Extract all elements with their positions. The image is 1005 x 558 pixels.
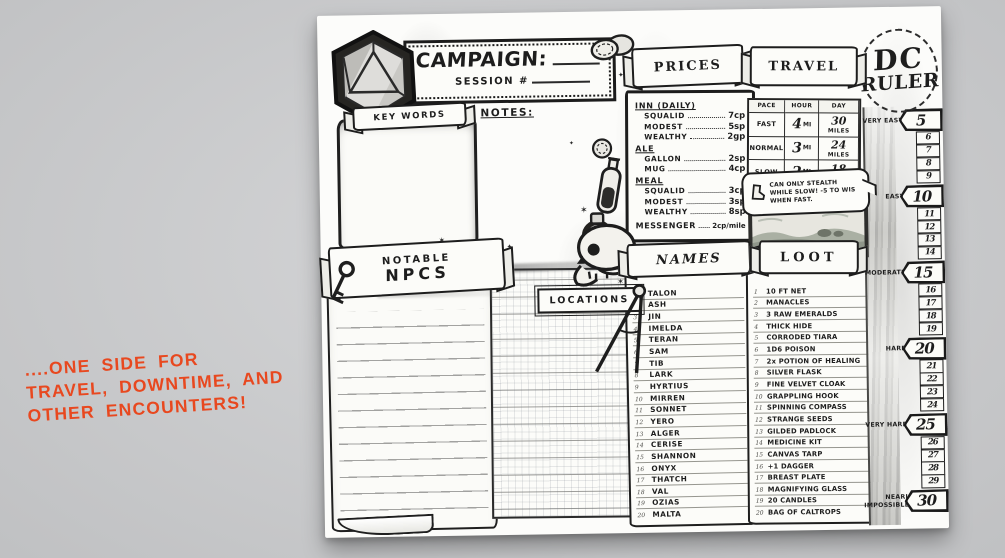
row-text: GILDED PADLOCK (764, 427, 836, 436)
row-text: SPINNING COMPASS (764, 403, 847, 412)
sparkle-doodle: ✦ (569, 140, 574, 147)
prices-title: PRICES (653, 57, 722, 75)
dc-minor-step: 16 (918, 283, 942, 296)
travel-day-unit: MILES (828, 152, 850, 158)
travel-hour-value: 4 (792, 117, 802, 133)
travel-day-value: 24 (831, 138, 846, 151)
price-value: 2gp (727, 131, 745, 141)
travel-col-header: PACE (749, 100, 785, 113)
dc-arrow-tag: 30 (904, 489, 948, 513)
row-number: 16 (756, 463, 765, 470)
loot-rows: 110 FT NET2MANACLES33 RAW EMERALDS4THICK… (753, 285, 871, 518)
travel-pace-cell: NORMAL (749, 137, 785, 161)
price-value: 7cp (728, 110, 745, 120)
price-row: MODEST5sp (635, 120, 745, 131)
name-row: 20MALTA (636, 507, 748, 520)
row-text: BREAST PLATE (765, 473, 826, 482)
dc-minor-step: 14 (918, 246, 942, 259)
row-number: 8 (755, 370, 764, 377)
potion-bottle-icon (591, 156, 628, 218)
price-row: WEALTHY8sp (636, 206, 746, 217)
row-number: 4 (754, 323, 763, 330)
dc-minor-step: 13 (917, 233, 941, 246)
dc-value: 30 (917, 492, 936, 510)
dotted-leader (669, 170, 726, 171)
dc-arrow-inner: 15 (903, 263, 942, 282)
dc-value: 12 (924, 222, 934, 232)
row-text: MIRREN (644, 393, 685, 403)
dc-arrow-tag: 15 (901, 260, 945, 284)
row-number: 18 (637, 489, 646, 496)
dc-arrow-inner: 5 (901, 111, 940, 130)
loot-row: 1920 CANDLES (755, 495, 871, 508)
row-number: 2 (754, 300, 763, 307)
dc-minor-step: 19 (919, 322, 943, 335)
price-label: GALLON (644, 154, 681, 163)
row-text: MALTA (646, 509, 681, 519)
loot-row: 11SPINNING COMPASS (754, 401, 870, 414)
loot-row: 110 FT NET (753, 285, 869, 298)
row-text: ALGER (645, 428, 681, 438)
loot-row: 12STRANGE SEEDS (754, 413, 870, 426)
npc-ruled-lines (336, 309, 489, 516)
notes-label: NOTES: (480, 107, 534, 120)
travel-hour-cell: 4MI (785, 113, 820, 137)
loot-row: 33 RAW EMERALDS (753, 308, 869, 321)
dc-minor-step: 7 (916, 144, 940, 157)
dc-arrow-inner: 25 (906, 415, 945, 434)
dc-value: 8 (926, 159, 931, 169)
dotted-leader (684, 160, 725, 161)
dc-arrow-tag: 25 (903, 413, 947, 437)
dc-value: 7 (926, 146, 931, 156)
dotted-leader (686, 202, 725, 203)
row-number: 11 (755, 405, 764, 412)
loot-row: 15CANVAS TARP (754, 448, 870, 461)
price-row: MODEST3sp (635, 195, 745, 206)
row-text: CORRODED TIARA (763, 333, 837, 342)
price-label: MODEST (645, 197, 684, 206)
row-text: MANACLES (763, 299, 810, 307)
dc-value: 29 (928, 476, 938, 486)
row-text: MAGNIFYING GLASS (765, 485, 847, 494)
dc-value: 17 (926, 298, 936, 308)
dc-arrow-inner: 20 (905, 339, 944, 358)
price-label: MODEST (644, 122, 683, 131)
row-text: 10 FT NET (763, 287, 806, 295)
row-number: 9 (755, 382, 764, 389)
dc-value: 23 (927, 387, 937, 397)
key-words-box (337, 117, 479, 251)
dc-value: 6 (925, 133, 930, 143)
drafting-compass-icon (589, 283, 654, 376)
loot-row: 10GRAPPLING HOOK (754, 390, 870, 403)
travel-hour-cell: 3MI (785, 137, 820, 161)
row-number: 15 (636, 454, 645, 461)
dc-minor-step: 17 (918, 296, 942, 309)
travel-col-header: HOUR (785, 100, 819, 113)
travel-day-unit: MILES (828, 129, 850, 135)
stealth-note-text: CAN ONLY STEALTH WHILE SLOW! -5 TO WIS W… (769, 178, 862, 205)
loot-row: 72x POTION OF HEALING (754, 355, 870, 368)
dotted-leader (699, 227, 709, 228)
row-text: SONNET (644, 404, 687, 414)
prices-panel: INN (DAILY)SQUALID7cpMODEST5spWEALTHY2gp… (625, 90, 756, 243)
price-value: 4cp (729, 163, 746, 173)
row-text: HYRTIUS (644, 381, 689, 391)
row-number: 16 (636, 466, 645, 473)
travel-col-header: DAY (820, 100, 860, 113)
price-label: MUG (644, 165, 665, 174)
dotted-leader (691, 213, 726, 214)
row-text: THATCH (646, 474, 688, 484)
dc-arrow-tag: 20 (902, 337, 946, 361)
dc-minor-step: 9 (916, 170, 940, 183)
dc-minor-step: 24 (920, 398, 944, 411)
stealth-note: CAN ONLY STEALTH WHILE SLOW! -5 TO WIS W… (741, 168, 871, 217)
loot-row: 16+1 DAGGER (754, 460, 870, 473)
row-number: 17 (637, 477, 646, 484)
row-number: 14 (755, 440, 764, 447)
loot-banner: LOOT (759, 240, 859, 274)
row-number: 9 (635, 384, 644, 391)
loot-row: 9FINE VELVET CLOAK (754, 378, 870, 391)
row-text: YERO (644, 416, 674, 426)
session-fill-line (532, 73, 590, 84)
travel-day-cell: 24MILES (819, 137, 859, 161)
dc-minor-step: 29 (921, 475, 945, 488)
dc-minor-step: 12 (917, 220, 941, 233)
dc-value: 10 (912, 187, 931, 205)
dc-value: 15 (913, 263, 932, 281)
dc-value: 26 (928, 437, 938, 447)
row-number: 11 (635, 407, 644, 414)
loot-row: 13GILDED PADLOCK (754, 425, 870, 438)
row-number: 12 (755, 416, 764, 423)
row-number: 13 (636, 431, 645, 438)
key-words-title: KEY WORDS (373, 110, 446, 124)
dc-major-step: EASY10 (900, 184, 944, 208)
price-row: SQUALID3cp (635, 185, 745, 196)
dc-value: 13 (925, 235, 935, 245)
dc-minor-step: 21 (919, 360, 943, 373)
travel-day-value: 30 (831, 115, 846, 128)
dotted-leader (688, 192, 725, 193)
row-number: 6 (755, 347, 764, 354)
dc-value: 19 (926, 324, 936, 334)
dotted-leader (686, 127, 725, 128)
npc-list-panel (326, 261, 498, 533)
campaign-label: CAMPAIGN: (415, 46, 548, 72)
dc-minor-step: 11 (917, 207, 941, 220)
loot-row: 17BREAST PLATE (755, 471, 871, 484)
dc-major-step: HARD20 (902, 337, 946, 361)
row-text: +1 DAGGER (765, 462, 815, 470)
row-number: 10 (755, 393, 764, 400)
loot-row: 4THICK HIDE (753, 320, 869, 333)
row-number: 15 (755, 451, 764, 458)
loot-row: 61D6 POISON (753, 343, 869, 356)
row-text: CANVAS TARP (764, 450, 822, 459)
dc-value: 20 (915, 339, 934, 357)
loot-row: 18MAGNIFYING GLASS (755, 483, 871, 496)
row-number: 19 (637, 501, 646, 508)
dc-value: 27 (928, 450, 938, 460)
dc-arrow-inner: 10 (902, 187, 941, 206)
dc-value: 24 (927, 400, 937, 410)
travel-banner: TRAVEL (750, 46, 858, 86)
dc-value: 18 (926, 311, 936, 321)
row-text: MEDICINE KIT (764, 438, 822, 447)
row-text: SILVER FLASK (764, 368, 822, 377)
travel-hour-unit: MI (803, 121, 811, 128)
dc-arrow-tag: 10 (900, 184, 944, 208)
row-number: 14 (636, 442, 645, 449)
row-text: 2x POTION OF HEALING (764, 356, 861, 365)
prices-banner: PRICES (631, 44, 745, 89)
row-number: 18 (756, 486, 765, 493)
price-label: WEALTHY (644, 132, 687, 141)
row-text: STRANGE SEEDS (764, 415, 833, 424)
dotted-leader (688, 117, 725, 118)
price-footer-value: 2cp/mile (712, 222, 745, 230)
row-text: 1D6 POISON (763, 345, 815, 353)
dc-value: 25 (916, 416, 935, 434)
dc-value: 21 (927, 361, 937, 371)
dc-value: 9 (926, 172, 931, 182)
row-text: 20 CANDLES (765, 497, 817, 505)
row-number: 10 (635, 396, 644, 403)
row-text: ONYX (645, 463, 676, 473)
price-value: 2sp (728, 153, 745, 163)
dc-minor-step: 18 (919, 309, 943, 322)
loot-row: 5CORRODED TIARA (753, 331, 869, 344)
dc-minor-step: 6 (916, 131, 940, 144)
row-text: 3 RAW EMERALDS (763, 310, 837, 319)
row-number: 7 (755, 358, 764, 365)
names-banner: NAMES (626, 240, 751, 278)
row-text: SHANNON (645, 451, 696, 461)
dc-value: 22 (927, 374, 937, 384)
price-row: WEALTHY2gp (635, 131, 745, 142)
price-label: SQUALID (644, 111, 685, 120)
dc-major-step: NEARLY IMPOSSIBLE30 (904, 489, 948, 513)
dc-value: 14 (925, 248, 935, 258)
row-number: 5 (754, 335, 763, 342)
boot-icon (749, 183, 766, 206)
dc-value: 16 (925, 285, 935, 295)
dc-minor-step: 23 (920, 385, 944, 398)
session-label: SESSION # (455, 76, 529, 88)
names-title: NAMES (656, 251, 722, 268)
row-text: OZIAS (646, 498, 680, 508)
price-row: GALLON2sp (635, 153, 745, 164)
price-footer-label: MESSENGER (636, 221, 696, 230)
dc-steps: VERY EASY56789EASY1011121314MODERATE1516… (898, 108, 948, 513)
row-number: 20 (637, 512, 646, 519)
dc-value: 5 (916, 111, 926, 129)
prices-body: INN (DAILY)SQUALID7cpMODEST5spWEALTHY2gp… (635, 101, 746, 217)
price-footer-row: MESSENGER 2cp/mile (636, 221, 746, 232)
row-text: BAG OF CALTROPS (765, 508, 841, 517)
row-number: 1 (754, 288, 763, 295)
dc-title-top: DC (873, 46, 924, 73)
row-number: 19 (756, 498, 765, 505)
loot-row: 20BAG OF CALTROPS (755, 506, 871, 518)
dc-ruler-title: DC RULER (857, 30, 940, 111)
dc-minor-step: 26 (921, 436, 945, 449)
price-label: WEALTHY (645, 207, 688, 216)
loot-panel: 110 FT NET2MANACLES33 RAW EMERALDS4THICK… (746, 258, 878, 525)
dc-minor-step: 28 (921, 462, 945, 475)
travel-hour-value: 3 (792, 140, 802, 156)
row-number: 20 (756, 510, 765, 517)
dc-value: 11 (924, 209, 934, 219)
loot-title: LOOT (780, 250, 837, 265)
dc-major-step: MODERATE15 (901, 260, 945, 284)
margin-note: ....ONE SIDE FOR TRAVEL, DOWNTIME, AND O… (24, 341, 308, 428)
price-row: SQUALID7cp (635, 110, 745, 121)
row-number: 17 (756, 475, 765, 482)
row-text: VAL (646, 486, 669, 495)
dc-ruler-strip (862, 107, 901, 525)
dc-value: 28 (928, 463, 938, 473)
price-label: SQUALID (644, 186, 685, 195)
dc-minor-step: 27 (921, 449, 945, 462)
loot-row: 2MANACLES (753, 296, 869, 309)
dc-major-step: VERY HARD25 (903, 413, 947, 437)
dc-arrow-inner: 30 (907, 492, 946, 511)
row-text: FINE VELVET CLOAK (764, 380, 846, 389)
row-number: 3 (754, 312, 763, 319)
price-value: 5sp (728, 120, 745, 130)
desktop-background: ....ONE SIDE FOR TRAVEL, DOWNTIME, AND O… (0, 0, 1005, 558)
loot-row: 8SILVER FLASK (754, 366, 870, 379)
row-text: THICK HIDE (763, 322, 812, 330)
row-text: CERISE (645, 439, 683, 449)
session-sheet: CAMPAIGN: SESSION # ✶ ✶ KEY WORDS ✶ NOTE… (317, 6, 949, 538)
price-row: MUG4cp (635, 163, 745, 174)
campaign-header-box: CAMPAIGN: SESSION # (403, 37, 616, 104)
loot-row: 14MEDICINE KIT (754, 436, 870, 449)
travel-title: TRAVEL (768, 59, 839, 74)
dc-title-main: RULER (860, 69, 939, 96)
npc-title-main: NPCS (385, 262, 450, 285)
row-number: 12 (635, 419, 644, 426)
row-text: GRAPPLING HOOK (764, 392, 839, 401)
travel-hour-unit: MI (803, 145, 811, 152)
dc-minor-step: 22 (920, 372, 944, 385)
travel-pace-cell: FAST (749, 113, 785, 137)
dc-minor-step: 8 (916, 157, 940, 170)
dotted-leader (690, 138, 724, 139)
row-number: 13 (755, 428, 764, 435)
